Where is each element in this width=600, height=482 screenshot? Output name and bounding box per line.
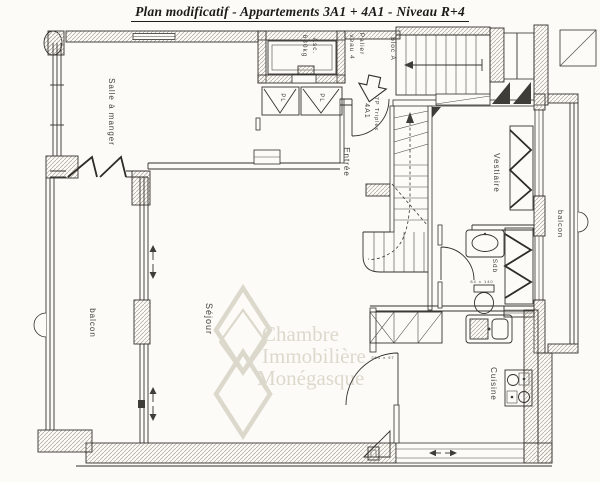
bathroom [441,228,534,317]
palier-closet-triangle [492,82,510,104]
label-balcon-right: balcon [556,210,565,238]
label-salle-a-manger: Salle à manger [107,78,116,146]
palier-closet-triangle [513,82,531,104]
walking-line-arrow [406,112,414,123]
label-vestiaire: Vestiaire [492,153,501,193]
label-palier: Palier [358,33,365,56]
watermark-line2: Immobilière [262,344,366,368]
label-sejour: Séjour [204,303,214,335]
understair-pier [366,184,390,196]
exterior-walls [38,25,596,466]
stair-direction-arrow [404,61,413,69]
label-cuisine: Cuisine [489,367,498,401]
label-bath-dim: 84 x 140 [470,279,493,284]
label-palier-level: veau 4 [348,34,355,60]
label-closet-pl-right: PL [318,93,324,102]
watermark-line3: Monégasque [257,366,364,390]
label-closet-pl-left: PL [279,93,285,102]
entry-arrow-icon [356,73,389,104]
balcony-left-rail [46,178,54,430]
label-elevator: Asc. [311,38,318,55]
balcony-left-rail-bump [34,313,46,337]
label-unit-line2: 4A1 [363,103,370,118]
bath-door-arc [441,247,474,280]
vestiaire-door-mark [431,107,441,119]
label-entree: Entrée [342,147,351,177]
floor-plan-drawing: Chambre Immobilière Monégasque [0,0,600,482]
shower-closet [505,228,533,304]
watermark-line1: Chambre [262,322,339,346]
label-elevator-capacity: 630kg [301,35,308,58]
label-unit-line1: 7P Triplex [373,97,379,131]
label-bloc-a: bloc A [389,37,396,61]
label-balcon-left: balcon [88,308,97,338]
watermark-logo: Chambre Immobilière Monégasque [216,288,366,436]
label-kitchen-dim: 264 x 97 [371,355,394,360]
balcony-right-rail [570,103,588,344]
wardrobe-zigzag [510,126,533,210]
palier-shelf [436,94,490,105]
toilet-tank [474,285,494,292]
toilet [475,293,494,314]
floor-plan-page: Plan modificatif - Appartements 3A1 + 4A… [0,0,600,482]
label-sdb: Sdb [491,259,498,274]
closets-pl [262,87,342,115]
